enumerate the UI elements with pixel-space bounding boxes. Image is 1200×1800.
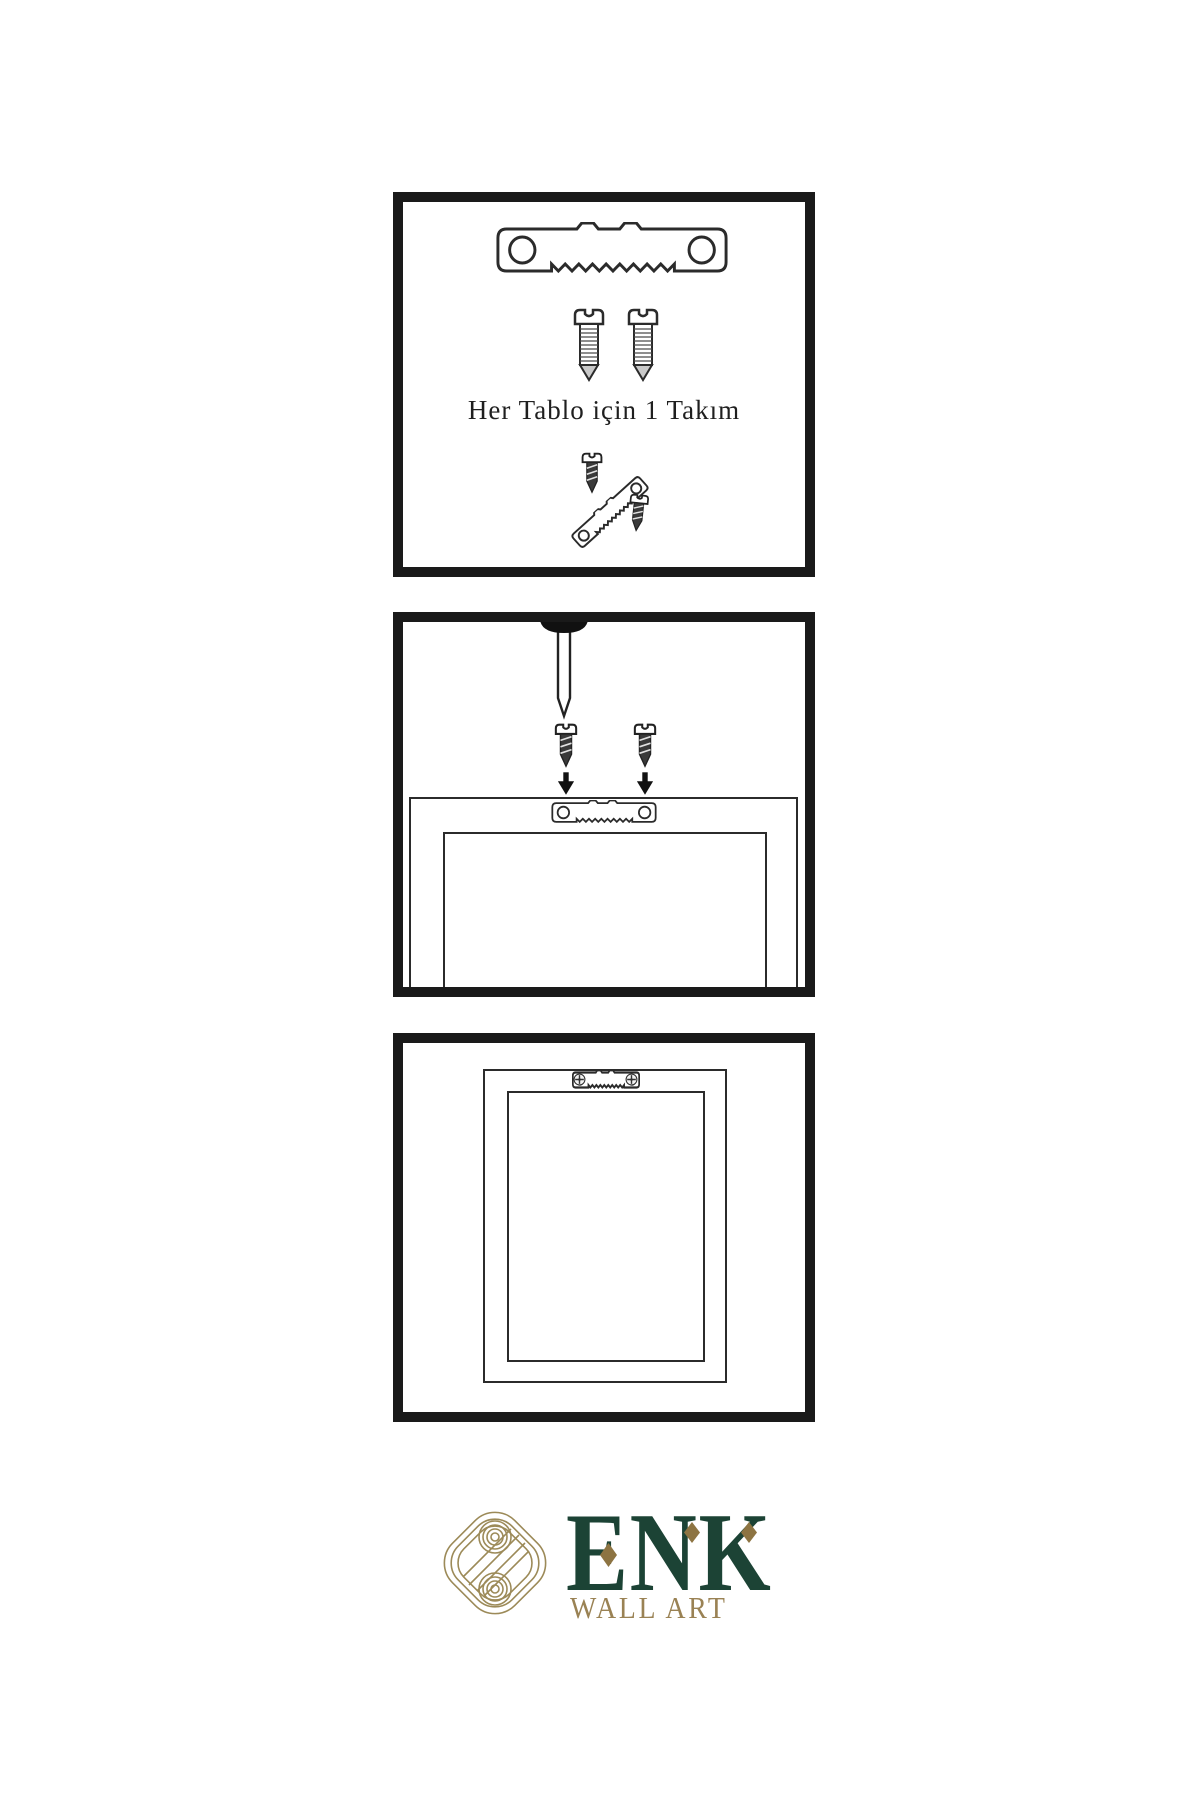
arrow-down-icon [636, 772, 654, 796]
arrow-down-icon [557, 772, 575, 796]
screw-head-icon [573, 1073, 586, 1086]
kit-caption: Her Tablo için 1 Takım [403, 395, 805, 426]
screw-dark-icon [632, 721, 658, 769]
panel-install-step [393, 612, 815, 997]
screw-icon [571, 305, 607, 383]
frame-back-inner [507, 1091, 705, 1362]
sawtooth-hanger-icon [495, 222, 729, 278]
panel-hardware-kit: Her Tablo için 1 Takım [393, 192, 815, 577]
nail-icon [538, 622, 590, 720]
frame-back-inner [443, 832, 767, 987]
screw-dark-icon [553, 721, 579, 769]
brand-subtitle: WALL ART [570, 1592, 728, 1623]
brand-knot-icon [433, 1497, 557, 1629]
screw-head-icon [625, 1073, 638, 1086]
screw-dark-icon [625, 491, 651, 534]
panel-hang-step [393, 1033, 815, 1422]
screw-dark-icon [580, 450, 604, 495]
screw-icon [625, 305, 661, 383]
sawtooth-hanger-icon [551, 800, 657, 825]
instruction-sheet: Her Tablo için 1 Takım [0, 0, 1200, 1800]
hanger-assembly-icon [558, 442, 688, 567]
